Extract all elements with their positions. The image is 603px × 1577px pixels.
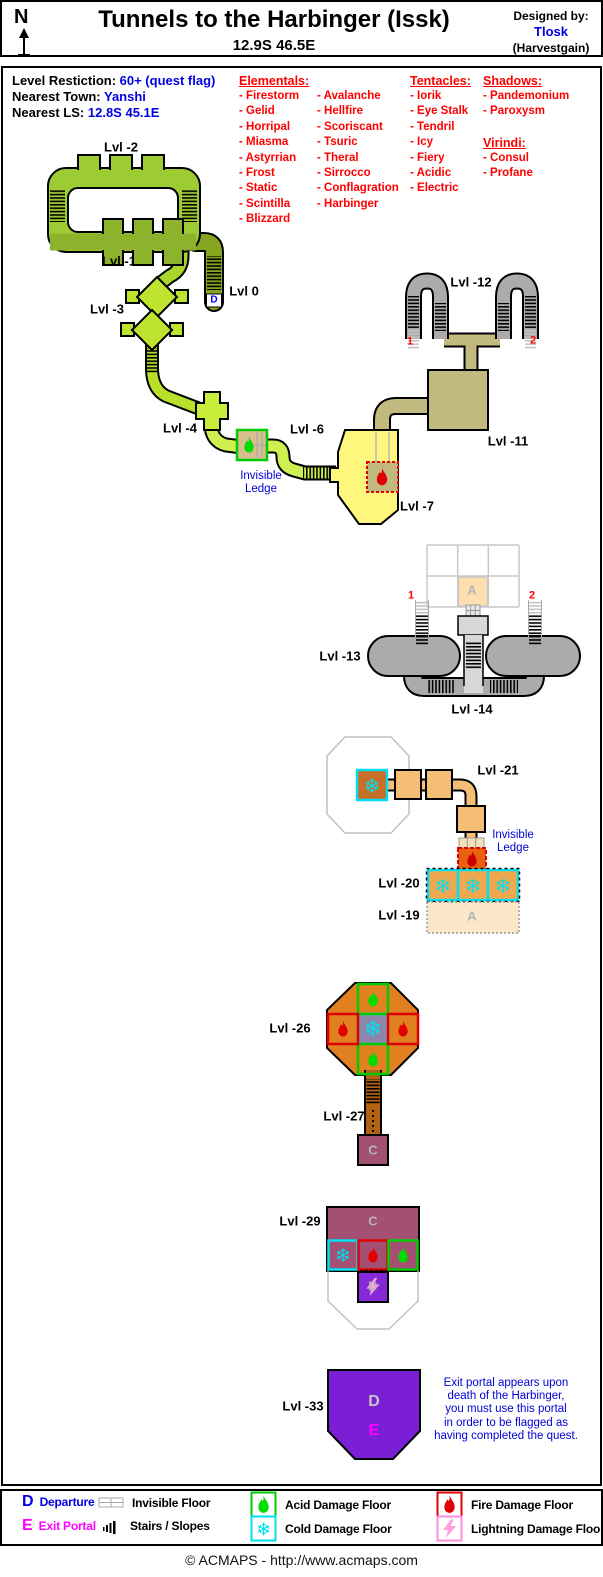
cold-floor-lvl-21: ❄ [357, 770, 387, 800]
map-section-lvl-21-19: ❄ ❄ ❄ ❄ [327, 737, 520, 933]
map-section-lvl-13-14 [368, 545, 580, 693]
footer-credit: © ACMAPS - http://www.acmaps.com [0, 1552, 603, 1568]
snowflake-icon: ❄ [465, 874, 482, 898]
map-section-lvl-11-12 [408, 281, 536, 430]
legend-stairs: Stairs / Slopes [101, 1518, 210, 1534]
lightning-floor-label: Lightning Damage Floor [471, 1522, 603, 1536]
lightning-floor-lvl-29 [358, 1272, 388, 1302]
legend-acid-floor: Acid Damage Floor [250, 1491, 391, 1518]
acid-floor-label: Acid Damage Floor [285, 1498, 391, 1512]
fire-floor-lvl-7 [367, 462, 398, 492]
snowflake-icon: ❄ [495, 874, 512, 898]
stairs-icon [101, 1518, 121, 1534]
lightning-floor-icon [436, 1515, 463, 1542]
legend-departure: D Departure [22, 1493, 94, 1511]
cold-floor-row-lvl-20: ❄ ❄ ❄ [427, 869, 520, 902]
dungeon-map-drawing: ❄ ❄ ❄ ❄ [0, 0, 603, 1577]
legend-cold-floor: ❄ Cold Damage Floor [250, 1515, 392, 1542]
legend-exit-portal: E Exit Portal [22, 1517, 96, 1535]
map-section-lvl-26-27: ❄ [327, 983, 418, 1165]
departure-label: Departure [40, 1495, 95, 1509]
exit-portal-label: Exit Portal [39, 1519, 96, 1533]
map-section-green [48, 155, 432, 524]
legend-lightning-floor: Lightning Damage Floor [436, 1515, 603, 1542]
snowflake-icon: ❄ [364, 774, 381, 798]
snowflake-icon: ❄ [335, 1245, 351, 1267]
fire-floor-label: Fire Damage Floor [471, 1498, 573, 1512]
svg-text:❄: ❄ [256, 1520, 271, 1541]
invisible-floor-icon [98, 1497, 124, 1509]
fire-floor-icon [436, 1491, 463, 1518]
legend-fire-floor: Fire Damage Floor [436, 1491, 573, 1518]
map-section-lvl-29: ❄ [327, 1207, 419, 1329]
exit-portal-letter: E [22, 1517, 33, 1535]
legend-invisible-floor: Invisible Floor [98, 1496, 210, 1510]
invisible-floor-label: Invisible Floor [132, 1496, 210, 1510]
stairs-label: Stairs / Slopes [130, 1519, 210, 1533]
departure-letter: D [22, 1493, 34, 1511]
snowflake-icon: ❄ [364, 1018, 382, 1043]
cold-floor-label: Cold Damage Floor [285, 1522, 392, 1536]
acid-floor-icon [250, 1491, 277, 1518]
acid-floor-invisible-ledge [237, 430, 267, 460]
map-section-lvl-33 [328, 1370, 420, 1459]
snowflake-icon: ❄ [435, 874, 452, 898]
cold-floor-icon: ❄ [250, 1515, 277, 1542]
acmaps-dungeon-map-page: N Tunnels to the Harbinger (Issk) 12.9S … [0, 0, 603, 1577]
